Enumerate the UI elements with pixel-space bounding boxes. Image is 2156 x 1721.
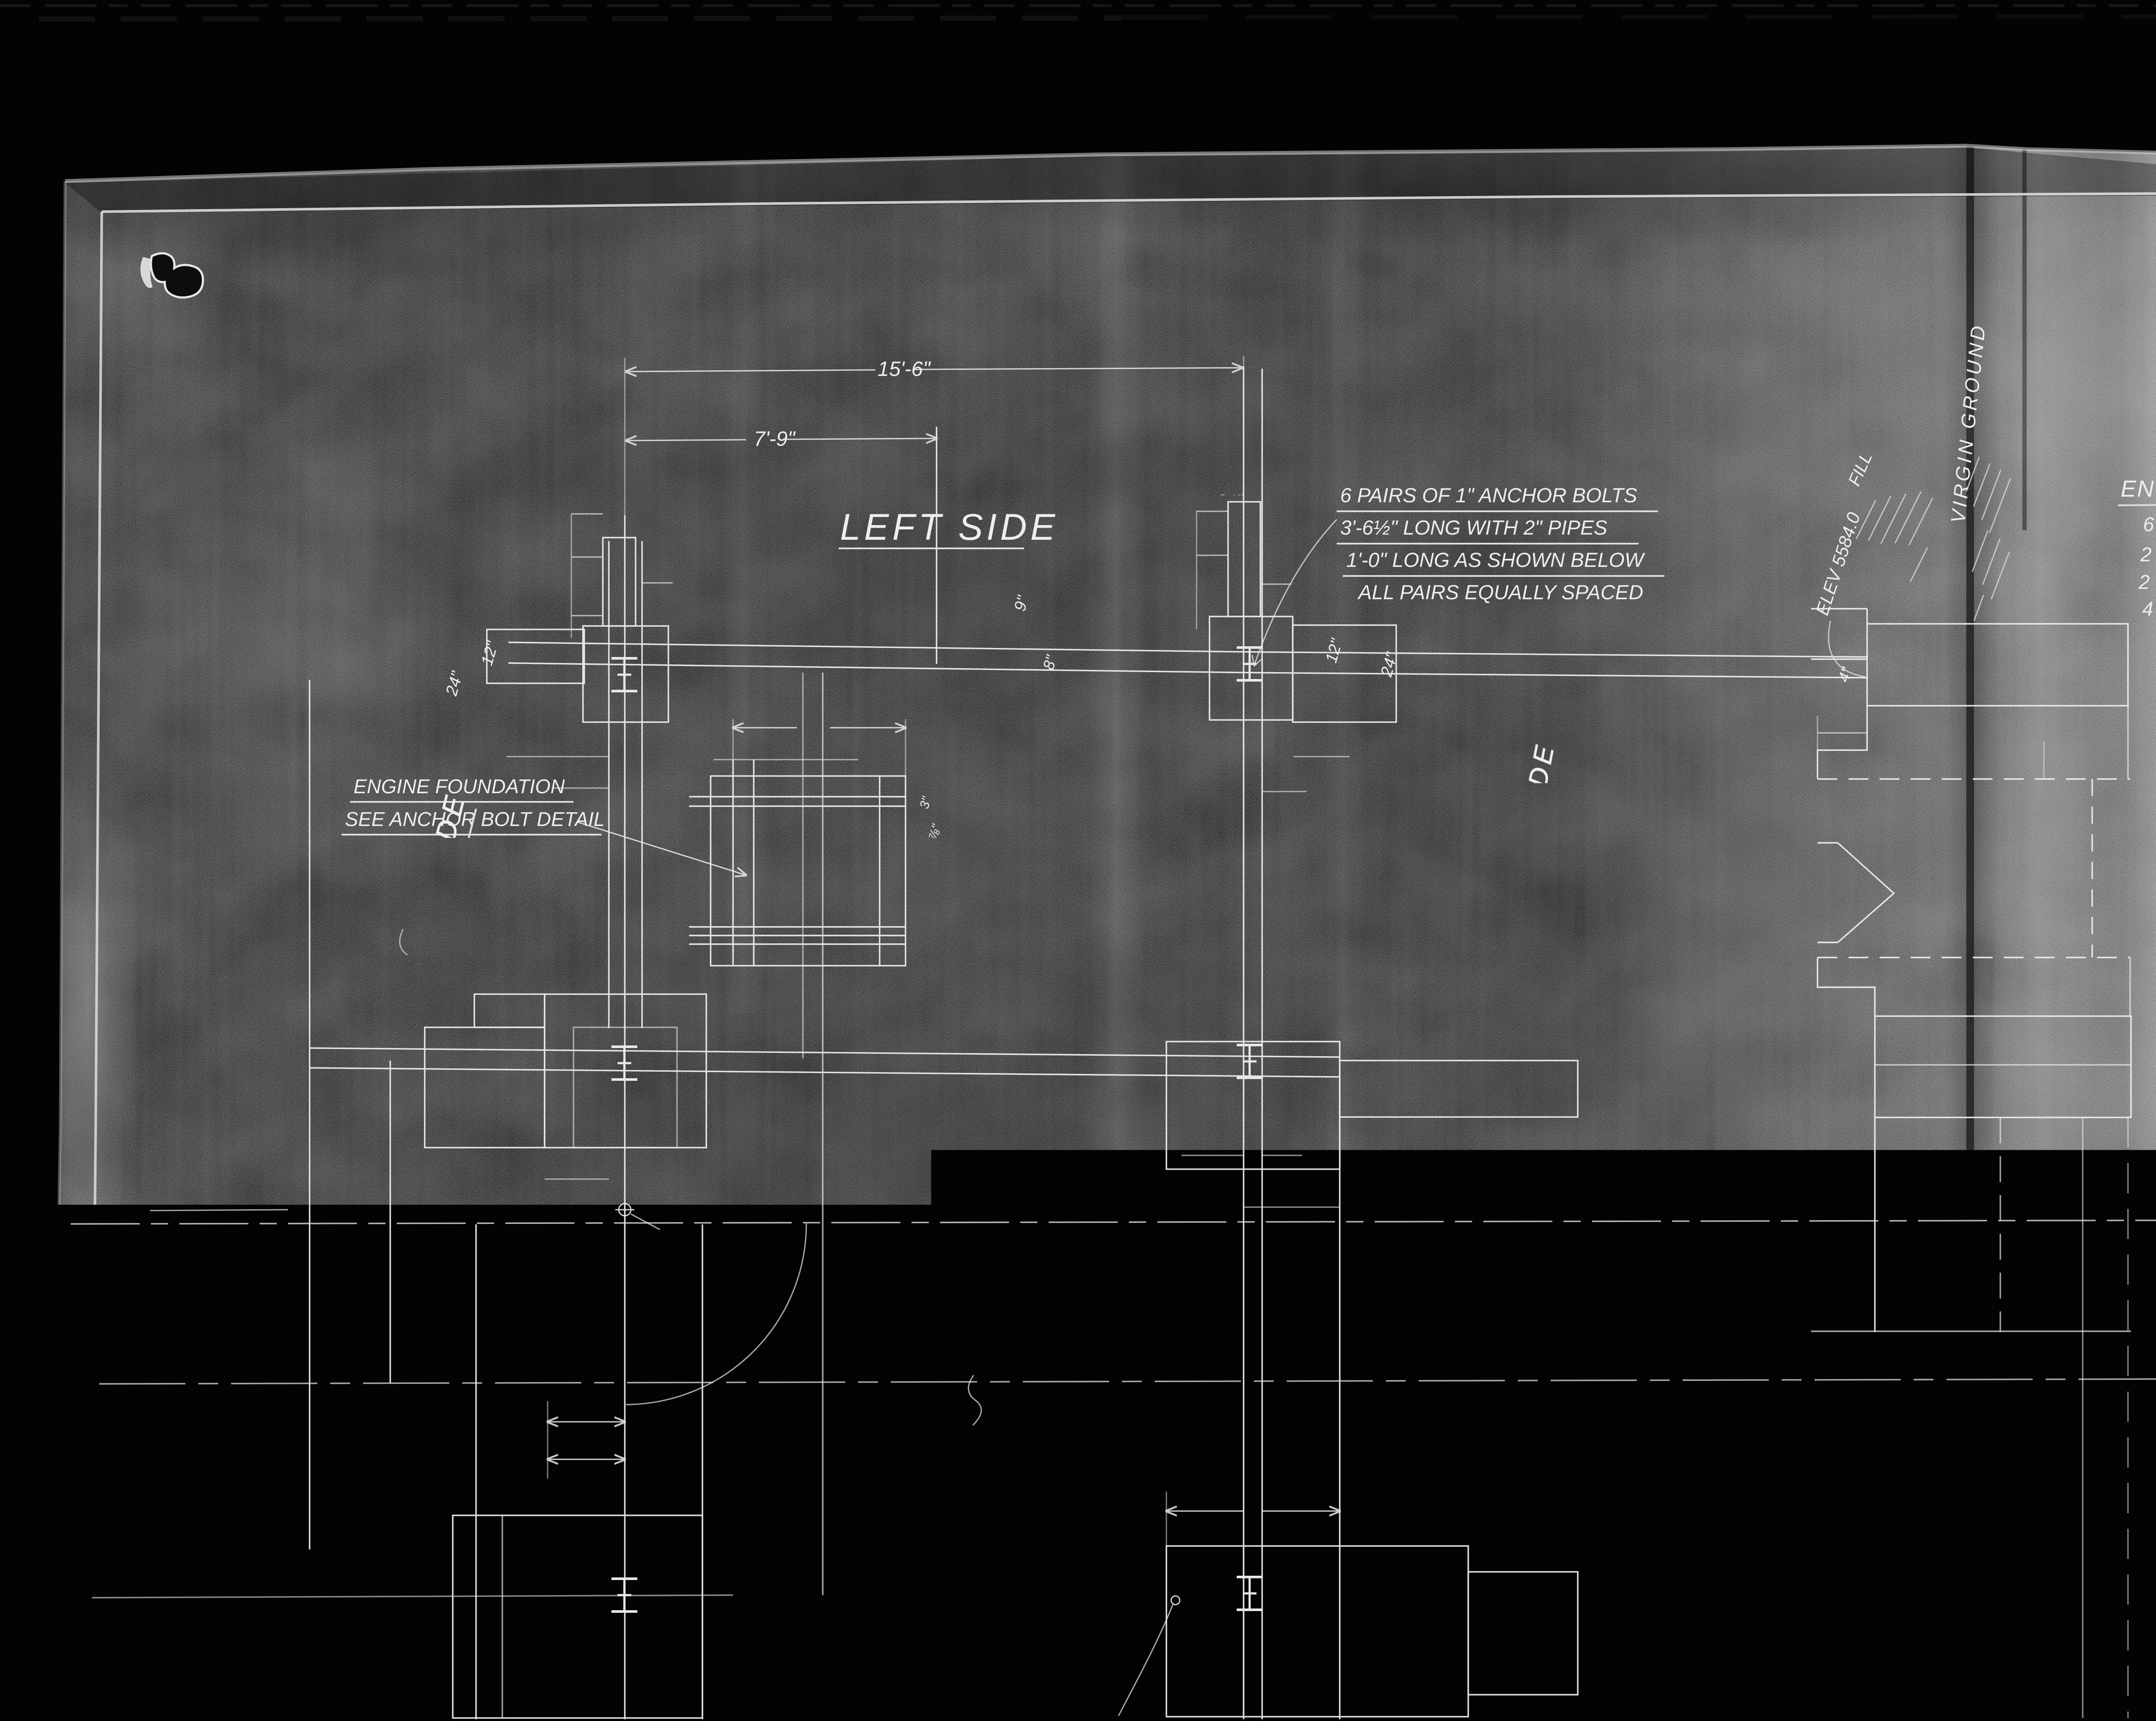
svg-text:9": 9": [1311, 770, 1327, 789]
svg-text:4'-0": 4'-0": [578, 1401, 613, 1420]
svg-text:OF STAKES OF LIFT: OF STAKES OF LIFT: [1009, 1186, 1199, 1208]
svg-text:6 PAIRS OF 1" ANCHOR BOLTS: 6 PAIRS OF 1" ANCHOR BOLTS: [1340, 484, 1637, 507]
svg-text:7¼": 7¼": [1285, 1135, 1316, 1154]
svg-text:12½": 12½": [791, 976, 828, 993]
svg-text:24": 24": [554, 494, 580, 513]
svg-text:L: L: [984, 1191, 997, 1218]
svg-text:7¼": 7¼": [567, 1158, 599, 1177]
svg-text:L: L: [980, 1417, 993, 1444]
svg-text:12": 12": [1824, 713, 1850, 732]
svg-text:12": 12": [1221, 535, 1247, 554]
svg-text:18": 18": [800, 740, 826, 759]
svg-text:7¼": 7¼": [1327, 736, 1358, 755]
svg-text:90° EXACT: 90° EXACT: [708, 1278, 816, 1301]
svg-text:8": 8": [1813, 824, 1829, 842]
svg-text:6: 6: [2143, 513, 2154, 535]
svg-text:7'-9": 7'-9": [754, 428, 796, 451]
svg-text:24": 24": [1216, 491, 1243, 510]
svg-text:7¼": 7¼": [513, 736, 544, 755]
svg-text:ENGINE SHIMS-14 REQ'D: ENGINE SHIMS-14 REQ'D: [2121, 476, 2156, 502]
svg-text:TO CONTROL: TO CONTROL: [152, 1175, 287, 1198]
svg-text:ALL PAIRS EQUALLY SPACED: ALL PAIRS EQUALLY SPACED: [1357, 581, 1643, 604]
svg-text:TERMINAL STAKE: TERMINAL STAKE: [635, 1229, 804, 1251]
svg-text:27": 27": [1205, 1137, 1231, 1156]
svg-text:6 PAIRS OF 1" ANCHOR BOLTS: 6 PAIRS OF 1" ANCHOR BOLTS: [1319, 1713, 1636, 1721]
svg-text:3½": 3½": [584, 595, 615, 614]
svg-text:12½": 12½": [733, 976, 770, 993]
svg-text:STAKE: STAKE: [152, 1223, 219, 1245]
svg-text:2: 2: [2138, 571, 2150, 593]
svg-text:16": 16": [2027, 753, 2051, 771]
svg-text:12": 12": [558, 537, 584, 556]
svg-text:RIGHT SIDE: RIGHT SIDE: [931, 1705, 1100, 1721]
svg-text:27": 27": [1203, 1489, 1229, 1508]
svg-text:MACHINERY ROOM: MACHINERY ROOM: [1007, 1409, 1225, 1435]
svg-text:2½": 2½": [846, 972, 874, 990]
svg-text:ENGINE ROOM, HEATED: ENGINE ROOM, HEATED: [968, 854, 1242, 880]
svg-text:15'-6": 15'-6": [877, 358, 931, 381]
svg-text:3'-6½" LONG WITH 2" PIPES: 3'-6½" LONG WITH 2" PIPES: [1340, 516, 1608, 539]
svg-text:9": 9": [357, 766, 373, 785]
svg-text:2'-0": 2'-0": [571, 1439, 607, 1458]
svg-text:3½": 3½": [1301, 567, 1332, 586]
svg-text:2'-4": 2'-4": [1287, 1486, 1322, 1505]
svg-text:50": 50": [802, 706, 828, 725]
svg-text:2: 2: [2140, 543, 2152, 566]
svg-text:2'-4": 2'-4": [1272, 1185, 1313, 1207]
svg-text:18": 18": [733, 740, 759, 759]
svg-text:0+55.0: 0+55.0: [635, 1262, 702, 1286]
svg-text:3½": 3½": [646, 563, 677, 582]
svg-text:LEFT SIDE: LEFT SIDE: [840, 507, 1059, 548]
svg-text:45°: 45°: [1862, 906, 1887, 924]
svg-text:3½": 3½": [1263, 563, 1294, 582]
svg-text:4: 4: [2142, 598, 2153, 620]
svg-text:1'-0" LONG AS SHOWN BELOW: 1'-0" LONG AS SHOWN BELOW: [1346, 548, 1646, 571]
